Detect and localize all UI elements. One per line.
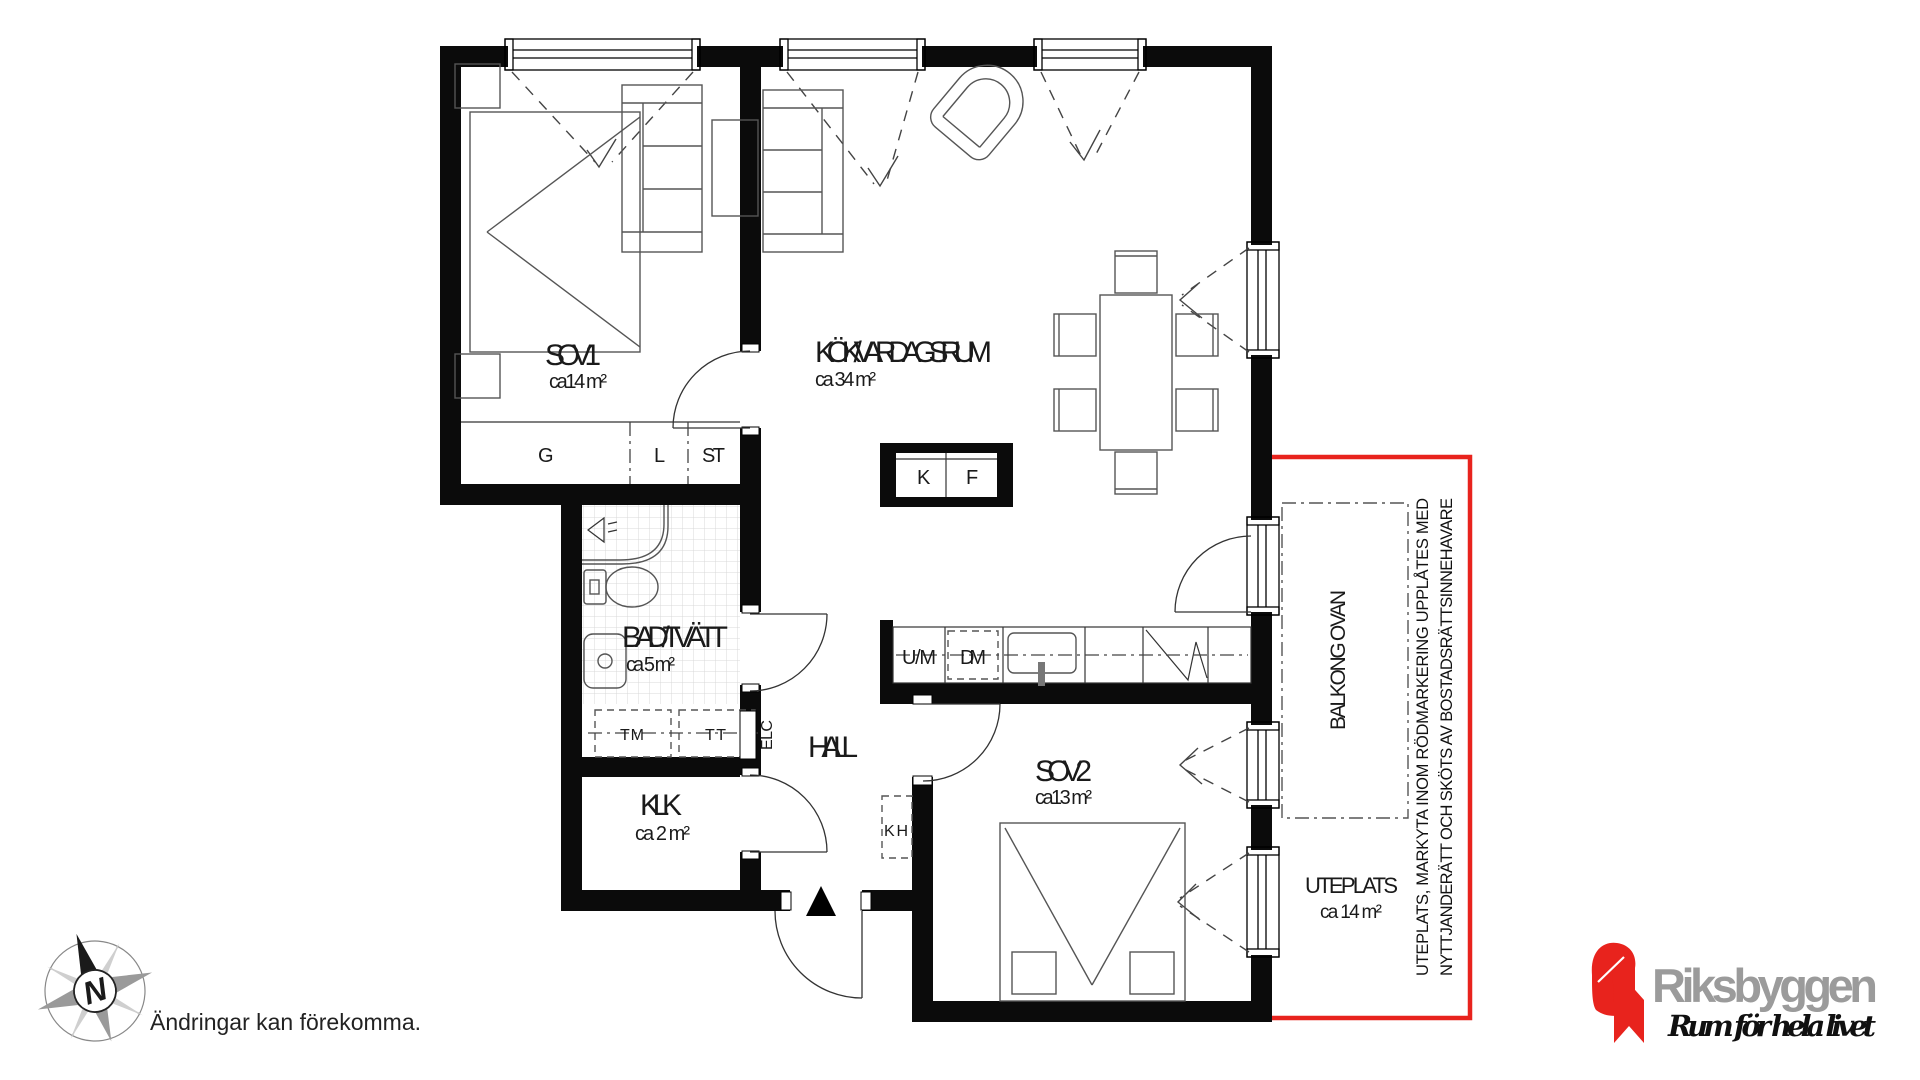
door-klk — [750, 775, 827, 852]
window — [1247, 242, 1279, 358]
balcony-door — [1175, 517, 1279, 615]
brand-logo: Riksbyggen Rum för hela livet — [1592, 943, 1877, 1043]
room-area-sov2: ca13 m² — [1035, 787, 1092, 809]
st-label: ST — [702, 445, 725, 467]
room-label-hall: HALL — [808, 731, 858, 764]
oven-micro-label: U/M — [902, 647, 936, 669]
freezer-label: F — [966, 467, 978, 489]
room-area-bad: ca 5 m² — [626, 654, 675, 676]
room-area-uteplats: ca 14 m² — [1320, 902, 1382, 923]
dishwasher-label: DM — [960, 647, 986, 669]
sov1-furniture — [455, 64, 740, 484]
window — [1247, 722, 1279, 808]
room-label-klk: KLK — [640, 789, 682, 822]
dining-chair — [1054, 389, 1096, 431]
room-area-klk: ca 2 m² — [635, 823, 690, 845]
floorplan-canvas: K F U/M DM — [0, 0, 1920, 1080]
fridge-label: K — [917, 467, 931, 489]
dryer-label: TT — [705, 727, 726, 744]
door-sov1 — [673, 351, 750, 428]
windows-top — [505, 39, 1146, 70]
fridge-freezer-cabinet: K F — [880, 443, 1013, 507]
window — [505, 39, 700, 70]
door-bathroom — [750, 614, 827, 691]
wardrobe-label: G — [538, 445, 554, 467]
sofa — [763, 90, 843, 252]
uteplats-note-line1: UTEPLATS, MARKYTA INOM RÖDMARKERING UPPL… — [1413, 498, 1432, 976]
compass-rose: N — [19, 915, 168, 1060]
riksbyggen-ribbon-icon — [1592, 943, 1644, 1043]
pillow — [1012, 952, 1056, 994]
nightstand — [455, 64, 500, 108]
sofa — [622, 85, 702, 252]
pillow — [1130, 952, 1174, 994]
brand-name: Riksbyggen — [1652, 959, 1877, 1012]
brand-tagline: Rum för hela livet — [1667, 1009, 1877, 1043]
door-sov2 — [923, 704, 1000, 781]
uteplats-note-line2: NYTTJANDERÄTT OCH SKÖTS AV BOSTADSRÄTTSI… — [1438, 498, 1456, 976]
bed — [1000, 823, 1185, 1001]
disclaimer-text: Ändringar kan förekomma. — [150, 1009, 421, 1035]
washer-label: TM — [620, 727, 644, 744]
faucet — [1038, 662, 1045, 686]
kh-label: KH — [884, 823, 908, 840]
linen-label: L — [654, 445, 665, 467]
sov2-furniture — [1000, 823, 1185, 1001]
room-label-bad: BAD/TVÄTT — [622, 621, 728, 654]
armchair — [925, 51, 1037, 165]
room-label-kok: KÖK/VARDAGSRUM — [815, 336, 992, 369]
floor-plan: K F U/M DM — [440, 39, 1470, 1022]
nightstand — [455, 354, 500, 398]
room-area-sov1: ca14 m² — [549, 371, 607, 393]
dining-chair — [1115, 251, 1157, 293]
dining-chair — [1176, 314, 1218, 356]
window — [1034, 39, 1146, 70]
kitchen-counter: U/M DM — [893, 627, 1251, 686]
balkong-ovan-label: BALKONG OVAN — [1327, 590, 1350, 730]
entrance-arrow — [806, 886, 836, 916]
dining-chair — [1115, 452, 1157, 494]
bed — [470, 112, 640, 352]
room-label-sov1: SOV 1 — [545, 339, 601, 372]
dining-table — [1100, 295, 1172, 450]
elc-label: ELC — [759, 720, 776, 750]
coat-rack: KH — [882, 796, 912, 858]
door-arc — [1175, 536, 1251, 612]
room-label-sov2: SOV 2 — [1035, 755, 1092, 788]
dining-chair — [1054, 314, 1096, 356]
walls — [440, 46, 1272, 1022]
dining-chair — [1176, 389, 1218, 431]
window — [780, 39, 925, 70]
room-area-kok: ca 34 m² — [815, 369, 876, 391]
room-label-uteplats: UTEPLATS — [1305, 873, 1398, 898]
uteplats-area: BALKONG OVAN UTEPLATS ca 14 m² UTEPLATS,… — [1272, 457, 1470, 1018]
window — [1247, 847, 1279, 957]
